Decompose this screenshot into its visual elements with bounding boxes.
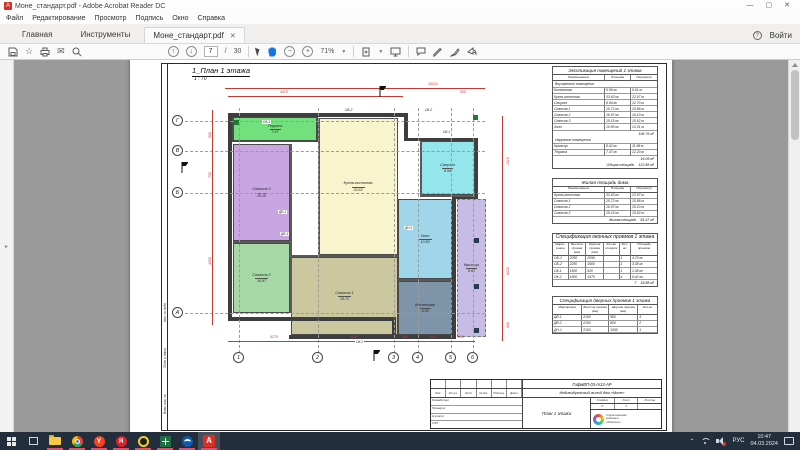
blue-app-icon[interactable]: [176, 432, 198, 450]
porch-column: [474, 328, 479, 333]
network-icon[interactable]: [700, 437, 710, 445]
stamp-vertical-label: Подп. и дата: [163, 348, 167, 368]
minimize-button[interactable]: —: [747, 1, 754, 11]
opening-label: ОК-2: [424, 108, 433, 112]
dimension-value: 500: [208, 132, 212, 138]
table-row: НаименованиеПлощадьПериметр: [553, 75, 657, 81]
zoom-in-icon[interactable]: +: [302, 46, 313, 57]
room-hall: Холл10.80: [398, 199, 452, 279]
door-spec-table: Спецификация дверных проемов 1 этажа Мар…: [552, 296, 658, 334]
table-cell: 1: [638, 327, 657, 333]
axis-number-2: 2: [312, 352, 323, 363]
table-cell: 7.47 м²: [605, 150, 631, 156]
dimension-value: 900: [460, 90, 466, 94]
print-icon[interactable]: [40, 47, 50, 57]
fit-caret-icon[interactable]: ▼: [378, 49, 383, 55]
save-icon[interactable]: [8, 47, 18, 57]
table-cell: ДН-1: [553, 327, 582, 333]
dimension-value: 16210: [428, 82, 438, 86]
wall: [452, 196, 456, 338]
interior-wall: [420, 195, 475, 197]
fit-page-icon[interactable]: [361, 47, 371, 57]
table-row: ОК-21500157049.42 м²: [553, 274, 657, 280]
task-view-button[interactable]: [22, 432, 44, 450]
acrobat-app-icon: A: [4, 2, 12, 10]
table-cell: Кол-во створок: [604, 243, 620, 256]
room-terrace: Терраса7.47: [232, 116, 318, 142]
menu-bar: Файл Редактирование Просмотр Подпись Окн…: [0, 12, 800, 24]
stamp-vertical-label: Взам. инв. №: [163, 394, 167, 414]
tab-document[interactable]: Моне_стандарт.pdf ✕: [144, 27, 244, 43]
room-boiler: Котельная5.55: [398, 281, 452, 335]
table-cell: Кол-во: [638, 305, 657, 314]
email-icon[interactable]: ✉: [57, 46, 65, 57]
volume-badge: [722, 442, 726, 446]
menu-file[interactable]: Файл: [6, 15, 23, 22]
axis-line-5: [451, 108, 452, 353]
table-cell: Спальня 3: [553, 211, 605, 217]
close-button[interactable]: ✕: [784, 1, 790, 11]
tab-tools[interactable]: Инструменты: [66, 26, 144, 43]
room-bedroom-1: Спальня 115.72: [291, 257, 398, 335]
section-mark-icon: [372, 348, 380, 366]
page-total: 30: [234, 48, 242, 55]
previous-page-button[interactable]: ↑: [168, 46, 179, 57]
page-number-input[interactable]: 7: [204, 46, 218, 57]
drawing-scale: 1 : 70: [194, 76, 207, 82]
dimension-value: 4650: [208, 257, 212, 265]
yandex-app-icon[interactable]: Я: [110, 432, 132, 450]
scroll-up-icon[interactable]: [792, 63, 798, 67]
select-tool-icon[interactable]: [256, 47, 260, 56]
start-button[interactable]: [0, 432, 22, 450]
dimension-value: 800: [402, 335, 408, 339]
table-row: Марки- ровкаВысота проема (мм)Ширина про…: [553, 243, 657, 256]
dimension-value: 6020: [506, 267, 510, 275]
tab-close-icon[interactable]: ✕: [230, 32, 236, 40]
axis-line-g: [180, 121, 485, 122]
title-block: ГифмВП-03-т13-АР Изм. Кол.уч. Лист № док…: [430, 379, 662, 429]
axis-letter-a: А: [172, 307, 183, 318]
table-cell: [604, 274, 620, 280]
sheet-title: План 1 этажа: [523, 398, 591, 428]
room-porch: Крыльцо8.62: [457, 199, 486, 337]
wall: [228, 113, 232, 321]
opening-label: ОК-2: [355, 340, 364, 344]
table-cell: 9.42 м²: [631, 274, 657, 280]
dimension-value: 4270: [270, 335, 278, 339]
help-icon[interactable]: ?: [753, 31, 762, 40]
table-row: ДН-1210010501: [553, 327, 657, 333]
section-mark-icon: [378, 84, 386, 102]
table-cell: 2100: [582, 327, 609, 333]
table-cell: Терраса: [553, 150, 605, 156]
column-marker: [473, 115, 478, 120]
zoom-caret-icon[interactable]: ▼: [341, 49, 346, 55]
living-area-table: Жилая площадь дома НаименованиеПлощадьПе…: [552, 178, 658, 224]
reading-mode-icon[interactable]: [390, 47, 401, 57]
interior-wall: [233, 241, 290, 243]
share-icon[interactable]: [467, 47, 477, 57]
sheet-stamp-column: [161, 63, 168, 431]
toolbar: ☆ ✉ ↑ ↓ 7 / 30 − + 71% ▼ ▼: [0, 44, 800, 60]
tab-home[interactable]: Главная: [8, 26, 66, 43]
axis-letter-g: Г: [172, 115, 183, 126]
axis-line-6: [473, 108, 474, 353]
company-logo: [593, 414, 604, 425]
table-row: МаркировкаВысота проема (мм)Ширина проем…: [553, 305, 657, 314]
explication-table: Экспликация помещений 1 этажа Наименован…: [552, 66, 658, 169]
hidden-icons-chevron[interactable]: ⌃: [689, 438, 694, 445]
language-indicator[interactable]: РУС: [732, 438, 744, 444]
table-cell: Маркировка: [553, 305, 582, 314]
table-cell: Высота проема (мм): [582, 305, 609, 314]
vertical-scrollbar[interactable]: [788, 60, 800, 432]
axis-letter-v: В: [172, 145, 183, 156]
axis-number-4: 4: [412, 352, 423, 363]
table-cell: 15.62 м: [631, 211, 657, 217]
comment-icon[interactable]: [416, 47, 426, 57]
spreadsheet-app-icon[interactable]: [154, 432, 176, 450]
table-cell: Ширина проема (мм): [609, 305, 638, 314]
table-cell: Марки- ровка: [553, 243, 569, 256]
axis-line-2: [318, 108, 319, 353]
porch-column: [474, 284, 479, 289]
taskbar: Y Я A ⌃ РУС 10:47 04.03.2024: [0, 432, 800, 450]
wall: [228, 317, 396, 321]
stamp-vertical-label: Инв. № подл.: [163, 302, 167, 322]
table-row: Терраса7.47 м²12.20 м: [553, 150, 657, 156]
opening-label: ДН-1: [404, 226, 413, 230]
table-cell: Площадь проемов: [631, 243, 657, 256]
tab-document-label: Моне_стандарт.pdf: [153, 31, 223, 40]
document-area: ▸ Инв. № подл. Подп. и дата Взам. инв. №…: [0, 60, 800, 432]
wall: [404, 138, 478, 141]
stage-value: Р: [591, 404, 615, 409]
porch-column: [474, 238, 479, 243]
dimension-value: 800: [458, 335, 464, 339]
table-row: Спальня 315.15 м²15.62 м: [553, 211, 657, 217]
pdf-page: Инв. № подл. Подп. и дата Взам. инв. № 1…: [130, 60, 672, 432]
table-cell: 1500: [569, 274, 587, 280]
table-cell: Кол- во: [620, 243, 631, 256]
hand-tool-icon[interactable]: [267, 46, 277, 57]
maximize-button[interactable]: ▢: [766, 1, 773, 11]
dimension-line: [502, 116, 503, 341]
table-cell: 15.15 м²: [605, 211, 631, 217]
table-cell: 1570: [586, 274, 604, 280]
project-name: Индивидуальный жилой дом «Моне»: [523, 389, 661, 397]
section-mark-icon: [180, 160, 188, 178]
dark-app-icon[interactable]: [132, 432, 154, 450]
wall: [404, 113, 408, 141]
window-title: Моне_стандарт.pdf - Adobe Acrobat Reader…: [15, 3, 165, 10]
menu-sign[interactable]: Подпись: [136, 15, 164, 22]
table-cell: 10.80 м²: [605, 124, 631, 130]
axis-line-b: [180, 193, 485, 194]
interior-wall: [420, 141, 422, 195]
axis-line-v: [180, 151, 485, 152]
dimension-value: 4470: [280, 90, 288, 94]
left-panel-collapsed[interactable]: ▸: [0, 60, 14, 432]
table-row: Холл10.80 м²13.01 м: [553, 124, 657, 130]
room-bedroom-2: Спальня 216.97: [233, 243, 290, 313]
interior-wall: [290, 144, 292, 313]
tab-bar: Главная Инструменты Моне_стандарт.pdf ✕ …: [0, 24, 800, 44]
table-cell: Периметр: [631, 75, 657, 81]
system-tray: ⌃ РУС 10:47 04.03.2024: [683, 432, 800, 450]
date: 04.03.2024: [750, 441, 778, 448]
acrobat-taskbar-icon[interactable]: A: [198, 432, 220, 450]
dimension-value: 1600: [429, 335, 437, 339]
menu-edit[interactable]: Редактирование: [32, 15, 85, 22]
sheets-total: [638, 404, 661, 409]
dimension-line: [225, 88, 485, 89]
axis-number-6: 6: [467, 352, 478, 363]
opening-label: ОБ-1: [262, 120, 271, 124]
axis-letter-b: Б: [172, 187, 183, 198]
dimension-line: [228, 341, 475, 342]
pencil-icon[interactable]: [433, 47, 443, 57]
axis-number-3: 3: [388, 352, 399, 363]
opening-label: ОБ-2: [344, 108, 353, 112]
zoom-level[interactable]: 71%: [320, 48, 334, 55]
menu-view[interactable]: Просмотр: [95, 15, 127, 22]
dimension-value: 4250: [350, 335, 358, 339]
axis-number-5: 5: [445, 352, 456, 363]
axis-line-4: [418, 108, 419, 353]
action-center-icon[interactable]: [784, 437, 794, 445]
table-cell: Высота проема (мм): [569, 243, 587, 256]
volume-icon[interactable]: [716, 437, 726, 445]
yandex-browser-icon[interactable]: Y: [88, 432, 110, 450]
axis-line-1: [239, 108, 240, 353]
dimension-value: 1810: [506, 157, 510, 165]
table-cell: 4: [620, 274, 631, 280]
sign-in-button[interactable]: Войти: [770, 31, 792, 40]
table-cell: Наименование: [553, 75, 605, 81]
scrollbar-thumb[interactable]: [791, 70, 799, 140]
document-code: ГифмВП-03-т13-АР: [523, 380, 661, 388]
dimension-line: [228, 96, 403, 97]
interior-wall: [398, 279, 452, 281]
file-explorer-icon[interactable]: [44, 432, 66, 450]
opening-label: ОК-1: [442, 130, 451, 134]
dimension-line: [212, 110, 213, 325]
time: 10:47: [750, 434, 778, 441]
axis-line-a: [180, 313, 485, 314]
opening-label: ДВ-1: [280, 232, 289, 236]
dimension-value: 750: [208, 172, 212, 178]
star-icon[interactable]: ☆: [25, 46, 33, 57]
window-spec-table: Спецификация оконных проемов 1 этажа Мар…: [552, 233, 658, 287]
column-marker: [234, 120, 239, 125]
table-cell: 1050: [609, 327, 638, 333]
search-icon[interactable]: [72, 47, 82, 57]
zoom-out-icon[interactable]: −: [284, 46, 295, 57]
panel-expand-icon[interactable]: ▸: [5, 243, 8, 250]
table-cell: 12.20 м: [631, 150, 657, 156]
menu-window[interactable]: Окно: [172, 15, 188, 22]
axis-number-1: 1: [233, 352, 244, 363]
dimension-value: 880: [506, 322, 510, 328]
chrome-icon[interactable]: [66, 432, 88, 450]
room-kitchen-living: Кухня-гостиная33.63: [318, 118, 398, 255]
next-page-button[interactable]: ↓: [186, 46, 197, 57]
wall: [475, 138, 478, 198]
table-cell: 13.01 м: [631, 124, 657, 130]
table-cell: Площадь: [605, 75, 631, 81]
sheet-tables: Экспликация помещений 1 этажа Наименован…: [552, 66, 658, 334]
interior-wall: [289, 255, 398, 257]
room-bathroom: Санузел8.94: [420, 141, 475, 195]
axis-line-3: [394, 108, 395, 353]
sheet-number: 2: [615, 404, 639, 409]
app-window: A Моне_стандарт.pdf - Adobe Acrobat Read…: [0, 0, 800, 450]
table-cell: ОК-2: [553, 274, 569, 280]
clock[interactable]: 10:47 04.03.2024: [750, 434, 778, 448]
title-bar: A Моне_стандарт.pdf - Adobe Acrobat Read…: [0, 0, 800, 12]
table-cell: Ширина проема (мм): [586, 243, 604, 256]
page-divider: /: [225, 48, 227, 55]
menu-help[interactable]: Справка: [198, 15, 225, 22]
opening-label: ДВ-1: [278, 210, 287, 214]
fill-sign-icon[interactable]: [450, 47, 460, 57]
table-cell: Холл: [553, 124, 605, 130]
